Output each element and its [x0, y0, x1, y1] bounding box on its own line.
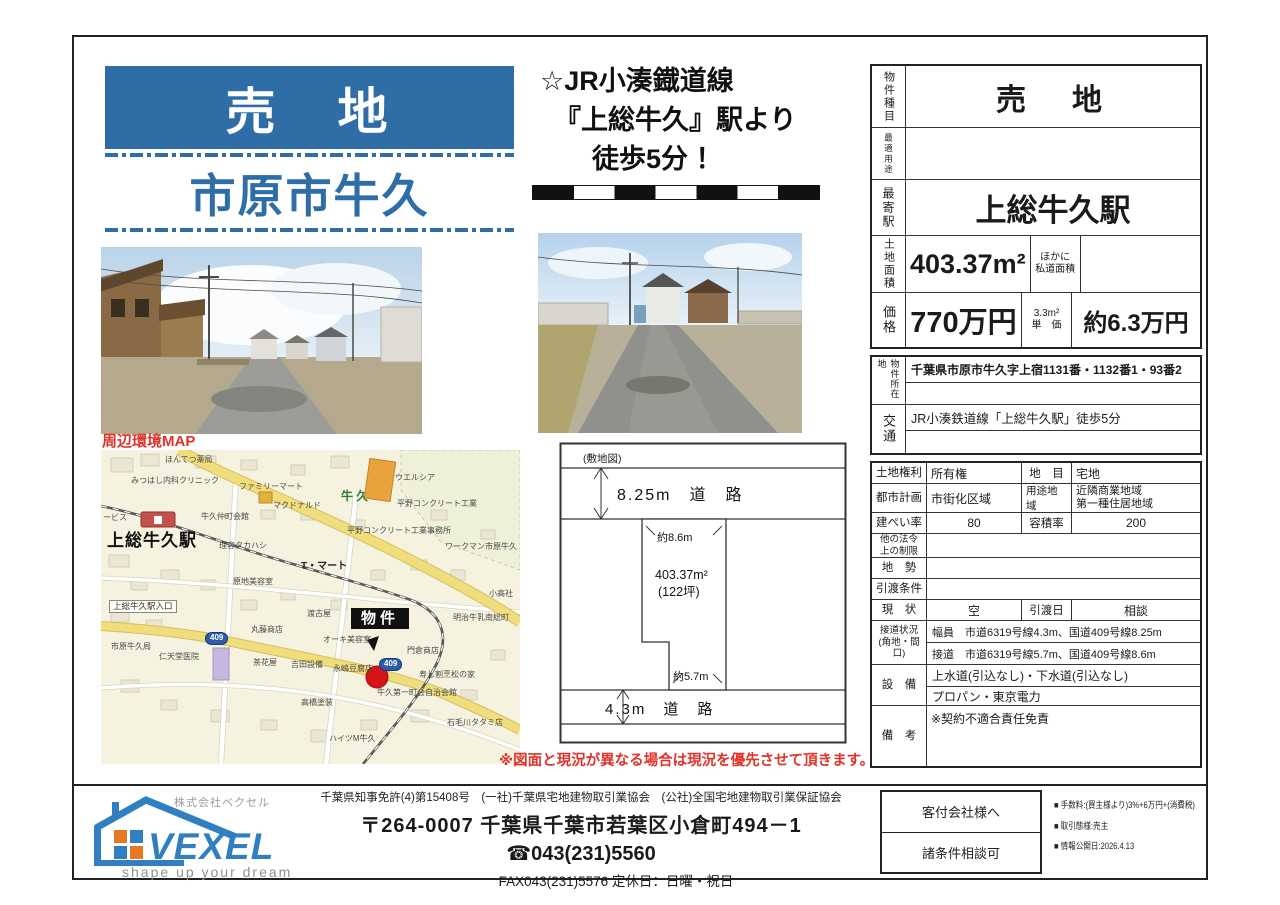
row-label: 都市計画	[872, 484, 927, 512]
deal-term-transaction-type: ■ 取引態様:売主	[1054, 816, 1183, 837]
map-label: ファミリーマート	[239, 483, 303, 491]
row-label: 容積率	[1022, 513, 1072, 533]
company-tagline: shape up your dream	[122, 864, 292, 880]
agent-notice-top: 客付会社様へ	[882, 792, 1040, 833]
map-label: 茶花屋	[253, 659, 277, 667]
row-label: 最適用途	[872, 128, 906, 179]
row-label: 地 目	[1022, 463, 1072, 483]
location-heading: 市原市牛久	[105, 161, 514, 225]
map-label: 牛久第一町会自治会館	[377, 689, 457, 697]
flyer-page: 売 地 市原市牛久	[72, 35, 1208, 880]
map-label: 丸藤商店	[251, 626, 283, 634]
deal-term-publish-date: ■ 情報公開日:2026.4.13	[1054, 836, 1183, 857]
map-heading: 周辺環境MAP	[102, 430, 195, 451]
map-label: 平野コンクリート工業	[397, 500, 477, 508]
map-label: 石毛川タタミ店	[447, 719, 503, 727]
unit-price-value: 約6.3万円	[1072, 293, 1200, 347]
route-shield-icon: 409	[205, 632, 228, 645]
utilities-value-2: プロパン・東京電力	[927, 687, 1200, 705]
catch-line-1: ☆JR小湊鐡道線	[540, 62, 870, 101]
row-label: 地 勢	[872, 558, 927, 578]
company-kana: 株式会社ベクセル	[174, 795, 270, 809]
property-photo-2	[538, 233, 802, 433]
map-label: ービス	[103, 514, 127, 522]
catch-line-3: 徒歩5分 ！	[540, 140, 870, 179]
row-label: 備 考	[872, 706, 927, 766]
map-label: 吉田設備	[291, 661, 323, 669]
catch-line-2: 『上総牛久』駅より	[540, 101, 870, 140]
map-label: 牛久	[341, 490, 371, 502]
map-label: 小高社	[489, 590, 513, 598]
row-label: 土地面積	[872, 236, 906, 292]
empty-cell	[906, 383, 1200, 404]
company-name: VEXEL	[148, 826, 274, 867]
row-label: 物件種目	[872, 66, 906, 127]
row-label: 接道状況 (角地・間口)	[872, 621, 927, 664]
coverage-ratio-value: 80	[927, 513, 1022, 533]
row-label: 価格	[872, 293, 906, 347]
deal-terms-list: ■ 手数料:(買主様より)3%+6万円+(消費税) ■ 取引態様:売主 ■ 情報…	[1054, 795, 1207, 857]
property-marker-label: 物件	[351, 608, 409, 629]
table-section-legal: 土地権利 所有権 地 目 宅地 都市計画 市街化区域 用途地域 近隣商業地域 第…	[870, 461, 1202, 768]
map-label: 門倉商店	[407, 647, 439, 655]
road-contact-value: 接道 市道6319号線5.7m、国道409号線8.6m	[927, 643, 1200, 664]
row-label: 引渡条件	[872, 579, 927, 599]
site-plan-diagram: (敷地図) 8.25m 道 路 約8.6m 403	[559, 442, 847, 744]
map-label: 高橋塗装	[301, 699, 333, 707]
map-label: 渡古屋	[307, 610, 331, 618]
road-bottom-label: 4.3m 道 路	[605, 701, 714, 718]
map-label: 明治牛乳南総町	[453, 614, 509, 622]
row-label: 現 状	[872, 600, 927, 620]
divider-dashed-top	[105, 153, 514, 157]
map-label: 理容タカハシ	[219, 542, 267, 550]
map-label: ワークマン市原牛久	[445, 543, 517, 551]
map-label: みつはし内科クリニック	[131, 477, 219, 485]
agent-notice-bottom: 諸条件相談可	[882, 833, 1040, 873]
remarks-value: ※契約不適合責任免責	[927, 706, 1200, 766]
land-area-value: 403.37m²	[906, 236, 1031, 292]
agent-notice-box: 客付会社様へ 諸条件相談可	[880, 790, 1042, 874]
map-label: 寿し割烹松の家	[419, 671, 475, 679]
property-type-value: 売 地	[906, 66, 1200, 127]
land-area-note: ほかに 私道面積	[1031, 236, 1081, 292]
map-labels: ほんてつ薬局みつはし内科クリニックファミリーマートマクドナルド牛久仲町会館理容タ…	[101, 450, 520, 764]
land-rights-value: 所有権	[927, 463, 1022, 483]
land-category-value: 宅地	[1072, 463, 1200, 483]
map-label: ほんてつ薬局	[165, 456, 212, 464]
address-value: 千葉県市原市牛久字上宿1131番・1132番1・93番2	[906, 357, 1200, 383]
access-value: JR小湊鉄道線「上総牛久駅」徒歩5分	[906, 405, 1200, 431]
handover-date-value: 相談	[1072, 600, 1200, 620]
city-planning-value: 市街化区域	[927, 484, 1022, 512]
photo2-ground	[538, 325, 802, 433]
area-map: ほんてつ薬局みつはし内科クリニックファミリーマートマクドナルド牛久仲町会館理容タ…	[101, 450, 520, 764]
sale-banner: 売 地	[105, 66, 514, 149]
plot-area-label: 403.37m²	[655, 568, 708, 582]
map-label: 平野コンクリート工業事務所	[347, 527, 451, 535]
map-label: T・マート	[301, 562, 347, 572]
row-label: 物件所在地	[872, 357, 906, 404]
map-label: 上総牛久駅入口	[109, 600, 177, 613]
footer-divider	[74, 784, 1206, 786]
row-label: 建ぺい率	[872, 513, 927, 533]
floor-area-ratio-value: 200	[1072, 513, 1200, 533]
row-label: 用途地域	[1022, 484, 1072, 512]
route-shield-icon: 409	[379, 658, 402, 671]
frontage-bottom-label: 約5.7m	[673, 669, 708, 683]
empty-cell	[927, 558, 1200, 578]
empty-cell	[906, 128, 1200, 179]
nearest-station-value: 上総牛久駅	[906, 180, 1200, 235]
unit-price-note: 3.3m² 単 価	[1022, 293, 1072, 347]
map-label: オーキ美容室	[323, 636, 371, 644]
row-label: 最寄駅	[872, 180, 906, 235]
plot-area-tsubo-label: (122坪)	[658, 585, 700, 599]
price-value: 770万円	[906, 293, 1022, 347]
company-logo: 株式会社ベクセル VEXEL shape up your dream	[88, 790, 318, 885]
company-fax: FAX043(231)5576 定休日：日曜・祝日	[286, 870, 876, 890]
utilities-value-1: 上水道(引込なし)・下水道(引込なし)	[927, 665, 1200, 687]
map-label: 仁天堂医院	[159, 653, 199, 661]
map-label: 市原牛久局	[111, 643, 151, 651]
road-width-value: 幅員 市道6319号線4.3m、国道409号線8.25m	[927, 621, 1200, 643]
company-address: 〒264-0007 千葉県千葉市若葉区小倉町494－1	[286, 809, 876, 838]
photo1-ground	[101, 357, 422, 434]
row-label: 交通	[872, 405, 906, 453]
road-top-label: 8.25m 道 路	[617, 486, 743, 504]
table-section-address: 物件所在地 千葉県市原市牛久字上宿1131番・1132番1・93番2 交通 JR…	[870, 355, 1202, 455]
row-label: 設 備	[872, 665, 927, 705]
current-status-value: 空	[927, 600, 1022, 620]
empty-cell	[927, 534, 1200, 557]
license-line: 千葉県知事免許(4)第15408号 (一社)千葉県宅地建物取引業協会 (公社)全…	[286, 789, 876, 805]
map-label: マクドナルド	[273, 502, 321, 510]
empty-cell	[1081, 236, 1200, 292]
row-label: 土地権利	[872, 463, 927, 483]
row-label: 引渡日	[1022, 600, 1072, 620]
deal-term-commission: ■ 手数料:(買主様より)3%+6万円+(消費税)	[1054, 795, 1183, 816]
frontage-top-label: 約8.6m	[657, 530, 692, 544]
map-label: ウエルシア	[395, 474, 435, 482]
row-label: 他の法令 上の制限	[872, 534, 927, 557]
map-label: 原地美容室	[233, 578, 273, 586]
map-label: 永嶋豆腐店	[333, 665, 373, 673]
table-section-main: 物件種目 売 地 最適用途 最寄駅 上総牛久駅 土地面積 403.37m² ほか…	[870, 64, 1202, 349]
zoning-value: 近隣商業地域 第一種住居地域	[1072, 484, 1200, 512]
empty-cell	[906, 431, 1200, 453]
site-plan-caption: (敷地図)	[583, 452, 622, 465]
map-label: ハイツM牛久	[329, 735, 376, 743]
map-label: 上総牛久駅	[107, 532, 197, 549]
catch-copy: ☆JR小湊鐡道線 『上総牛久』駅より 徒歩5分 ！	[540, 62, 870, 179]
property-photo-1	[101, 247, 422, 434]
company-phone: ☎043(231)5560	[286, 841, 876, 866]
scale-bar	[532, 185, 820, 200]
map-label: 牛久仲町会館	[201, 513, 249, 521]
footer-contact-block: 千葉県知事免許(4)第15408号 (一社)千葉県宅地建物取引業協会 (公社)全…	[286, 789, 876, 890]
empty-cell	[927, 579, 1200, 599]
divider-dashed-bottom	[105, 228, 514, 232]
